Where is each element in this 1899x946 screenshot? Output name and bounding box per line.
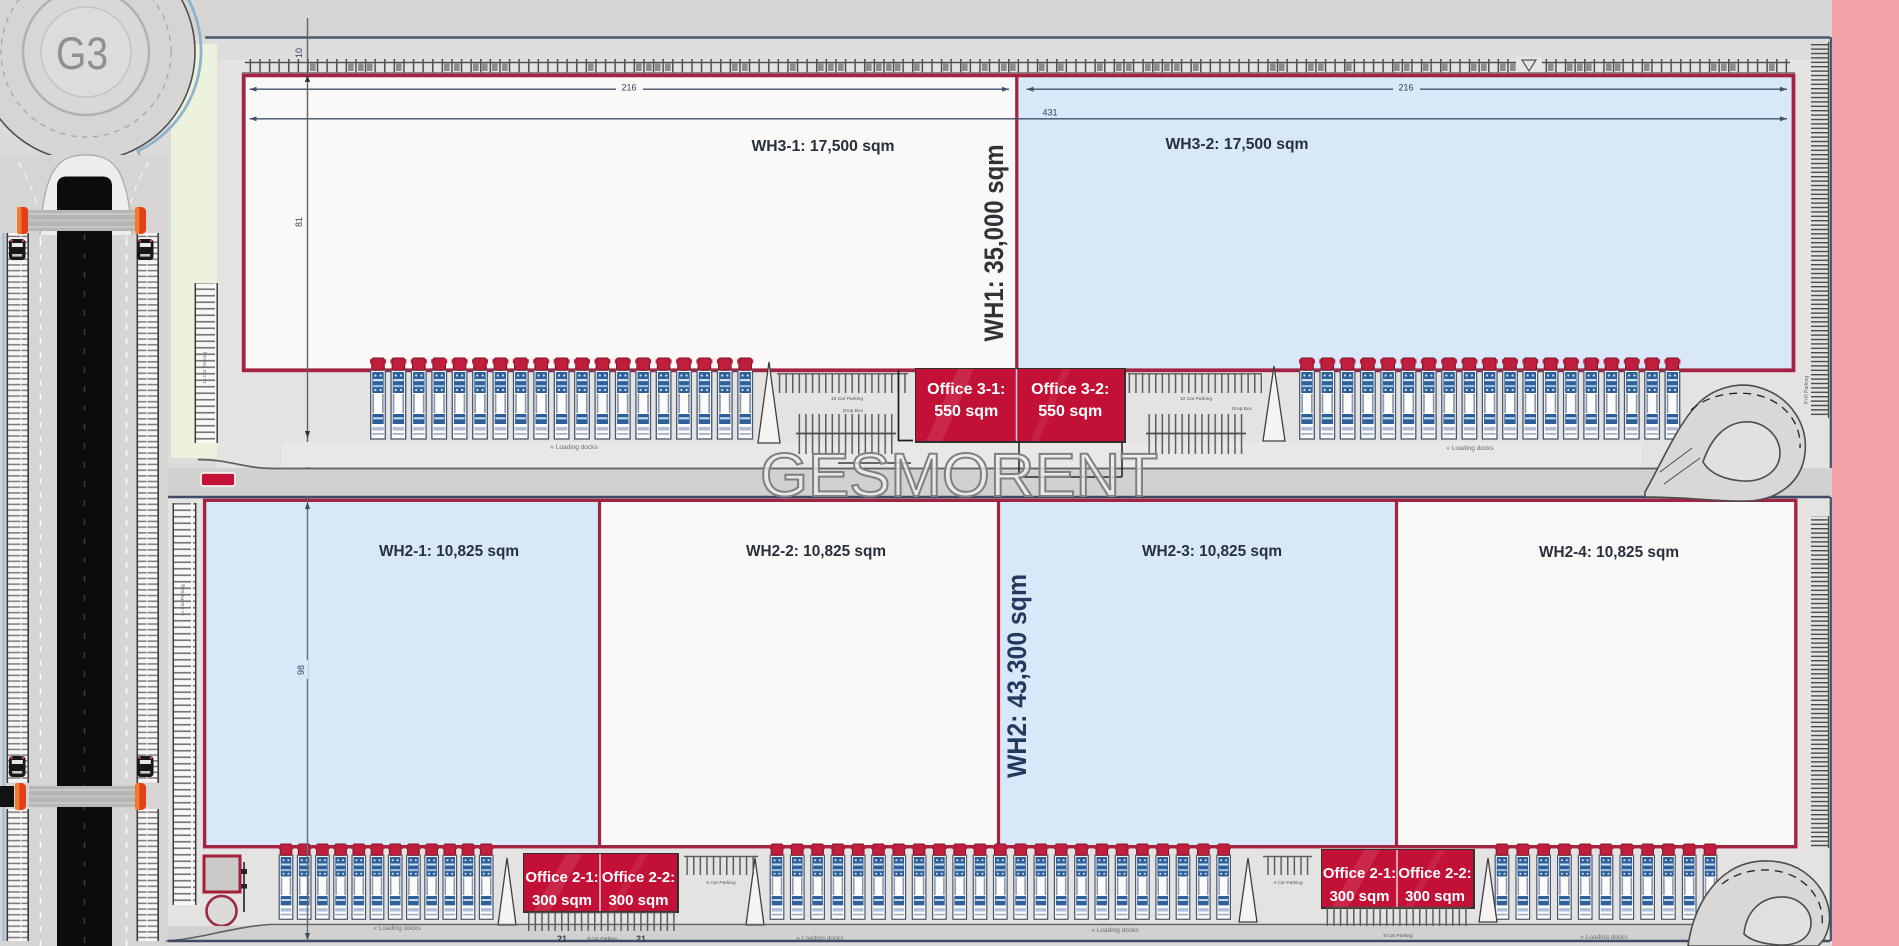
svg-text:« Loading docks: « Loading docks bbox=[1580, 934, 1628, 941]
svg-text:WH2-3: 10,825 sqm: WH2-3: 10,825 sqm bbox=[1142, 543, 1282, 560]
svg-text:300 sqm: 300 sqm bbox=[532, 892, 592, 909]
svg-text:10 Car Parking: 10 Car Parking bbox=[831, 396, 863, 402]
svg-text:4 Car Parking: 4 Car Parking bbox=[1273, 880, 1303, 886]
svg-text:8 Car Parking: 8 Car Parking bbox=[587, 936, 617, 942]
svg-text:Office 2-1:: Office 2-1: bbox=[525, 869, 598, 886]
svg-text:Office 3-2:: Office 3-2: bbox=[1031, 381, 1109, 398]
svg-text:300 sqm: 300 sqm bbox=[1405, 888, 1465, 905]
svg-text:216: 216 bbox=[621, 83, 636, 93]
svg-text:Office 2-2:: Office 2-2: bbox=[602, 869, 675, 886]
svg-text:8 Car Parking: 8 Car Parking bbox=[1383, 933, 1413, 939]
svg-text:Office 3-1:: Office 3-1: bbox=[927, 381, 1005, 398]
svg-text:« Loading docks: « Loading docks bbox=[550, 444, 598, 451]
svg-text:21: 21 bbox=[636, 934, 646, 944]
svg-text:P+R Parking: P+R Parking bbox=[1804, 376, 1810, 404]
svg-text:« Loading docks: « Loading docks bbox=[1446, 445, 1494, 452]
svg-text:WH1: 35,000 sqm: WH1: 35,000 sqm bbox=[979, 145, 1009, 342]
svg-text:216: 216 bbox=[1398, 83, 1413, 93]
svg-text:300 sqm: 300 sqm bbox=[608, 892, 668, 909]
svg-text:WH3-1: 17,500 sqm: WH3-1: 17,500 sqm bbox=[752, 138, 895, 155]
svg-text:WH2-2: 10,825 sqm: WH2-2: 10,825 sqm bbox=[746, 543, 886, 560]
svg-text:WH3-2: 17,500 sqm: WH3-2: 17,500 sqm bbox=[1166, 136, 1309, 153]
svg-text:Drop Box: Drop Box bbox=[1232, 406, 1253, 412]
svg-text:WH2: 43,300 sqm: WH2: 43,300 sqm bbox=[1002, 574, 1032, 778]
svg-text:WH2-1: 10,825 sqm: WH2-1: 10,825 sqm bbox=[379, 543, 519, 560]
svg-text:Office 2-1:: Office 2-1: bbox=[1323, 865, 1396, 882]
svg-text:10 Car Parking: 10 Car Parking bbox=[1180, 396, 1212, 402]
svg-text:GESMORENT: GESMORENT bbox=[760, 441, 1158, 509]
svg-text:98: 98 bbox=[296, 665, 306, 675]
svg-text:550 sqm: 550 sqm bbox=[934, 403, 998, 420]
svg-text:« Loading docks: « Loading docks bbox=[1091, 927, 1139, 934]
svg-text:5 Car Parking: 5 Car Parking bbox=[706, 880, 736, 886]
svg-text:431: 431 bbox=[1042, 108, 1057, 118]
svg-text:550 sqm: 550 sqm bbox=[1038, 403, 1102, 420]
svg-text:xx Car Parking: xx Car Parking bbox=[180, 584, 186, 616]
svg-text:10: 10 bbox=[294, 48, 304, 58]
svg-text:Office 2-2:: Office 2-2: bbox=[1398, 865, 1471, 882]
svg-text:« Loading docks: « Loading docks bbox=[373, 925, 421, 932]
svg-text:G3: G3 bbox=[56, 28, 108, 79]
svg-text:« Loading docks: « Loading docks bbox=[796, 935, 844, 942]
svg-text:Drop Box: Drop Box bbox=[843, 408, 864, 414]
svg-text:81: 81 bbox=[294, 217, 304, 227]
svg-text:WH2-4: 10,825 sqm: WH2-4: 10,825 sqm bbox=[1539, 544, 1679, 561]
svg-text:21: 21 bbox=[557, 934, 567, 944]
svg-text:300 sqm: 300 sqm bbox=[1329, 888, 1389, 905]
svg-text:14 Car Parking: 14 Car Parking bbox=[202, 352, 208, 384]
